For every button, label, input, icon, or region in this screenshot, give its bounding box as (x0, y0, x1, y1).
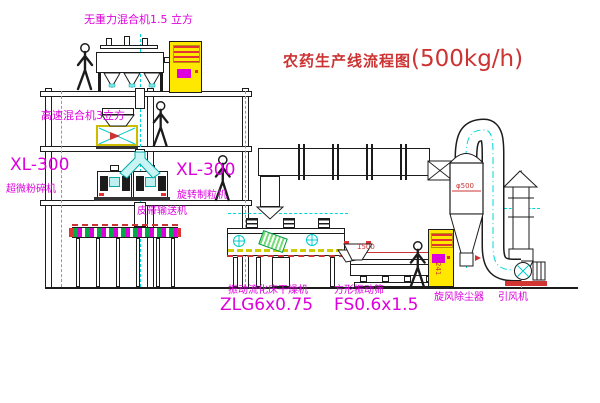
duct-vertical (260, 176, 280, 207)
sieve-dim-tick (352, 249, 353, 256)
dryer-leg (233, 257, 238, 287)
dryer-leg (330, 257, 335, 287)
conveyor-leg (136, 238, 140, 287)
duct-flange (405, 144, 407, 180)
floor-beam-top (40, 91, 252, 97)
fan-base (505, 281, 547, 286)
diagram-title-rate: (500kg/h) (411, 46, 523, 72)
mixer-stub (124, 36, 130, 46)
mixer-stub (142, 38, 148, 46)
centerline (504, 208, 540, 209)
granulator-motor (158, 176, 166, 191)
granulator-motor (100, 176, 108, 191)
centerline (466, 142, 467, 268)
conveyor-leg (76, 238, 80, 287)
sieve-inlet-mark (344, 241, 349, 245)
floor-beam-middle (40, 146, 252, 152)
label-belt-conveyor: 皮带输送机 (137, 207, 187, 217)
duct-flange (303, 144, 305, 180)
cyclone-exhaust-duct (466, 130, 521, 270)
person-figure (78, 44, 92, 89)
dryer-support-block (272, 257, 290, 287)
label-high-speed-mixer: 高速混合机3立方 (41, 110, 125, 121)
label-cyclone: 旋风除尘器 (434, 293, 484, 303)
cabinet-lamp (195, 70, 198, 73)
mixer-hoppers (104, 73, 160, 87)
duct-flange (400, 144, 402, 180)
hs-mixer-bowl (96, 125, 138, 146)
duct-flange (332, 144, 334, 180)
zero-gravity-mixer-body (96, 52, 164, 73)
dryer-inner-line (228, 233, 344, 234)
conveyor-leg (156, 238, 160, 287)
conveyor-end-mark (69, 228, 73, 237)
centerline (245, 91, 246, 287)
label-dryer-model: ZLG6x0.75 (220, 297, 313, 314)
label-granulator-model: XL-300 (176, 162, 235, 179)
dryer-frame-stripe (228, 249, 344, 252)
chute-mixer-down (135, 88, 145, 109)
duct-flange (298, 144, 300, 180)
dim-cyclone-diameter: φ500 (456, 183, 474, 190)
ground-line (45, 287, 578, 289)
cabinet-indicator-grid (173, 45, 200, 63)
conveyor-leg (96, 238, 100, 287)
granulator-mark (161, 193, 166, 196)
belt-conveyor-body (72, 227, 178, 238)
cabinet-lamp (447, 256, 450, 259)
label-sieve-model: FS0.6x1.5 (334, 297, 418, 314)
granulator-motor (122, 176, 130, 191)
cabinet-display (177, 69, 191, 78)
mixer-leg (98, 73, 101, 91)
centerline (228, 213, 348, 214)
label-pulverizer-model: XL-300 (10, 157, 69, 174)
granulator-inlet (110, 165, 119, 171)
label-zero-gravity-mixer: 无重力混合机1.5 立方 (84, 14, 193, 25)
granulator-window (109, 177, 120, 187)
label-granulator-name: 旋转制粒机 (177, 191, 227, 201)
dim-sieve-length: 1500 (357, 244, 375, 251)
chute-hsmixer-down (135, 149, 145, 153)
diagram-title-cn: 农药生产线流程图 (283, 50, 411, 71)
person-figure (154, 102, 168, 146)
conveyor-leg (171, 238, 175, 287)
granulator-base (94, 197, 170, 201)
cad-flow-diagram: 农药生产线流程图 (500kg/h) 无重力混合机1.5 立方 高速混合机3立方… (0, 0, 600, 403)
granulator-window (145, 177, 156, 187)
mixer-stub (106, 38, 112, 46)
granulator-motor (136, 176, 144, 191)
granulator-mark (99, 193, 104, 196)
conveyor-leg (116, 238, 120, 287)
hs-mixer-base (96, 146, 138, 149)
label-pulverizer-name: 超微粉碎机 (6, 185, 56, 195)
granulator-inlet (146, 165, 155, 171)
duct-flange (337, 144, 339, 180)
centerline (521, 170, 522, 288)
belt-conveyor-red-edge (72, 224, 178, 226)
diagram-title: 农药生产线流程图 (500kg/h) (283, 46, 523, 72)
label-fan: 引风机 (498, 293, 528, 303)
duct-flange (371, 144, 373, 180)
dryer-leg (256, 257, 261, 287)
mixer-leg (160, 73, 163, 91)
rotary-valve-mark (475, 255, 481, 261)
dim-sieve-height: 241 (434, 262, 441, 275)
conveyor-end-mark (177, 228, 181, 237)
cabinet-indicator-grid (431, 233, 453, 248)
induced-draft-fan (505, 262, 547, 286)
duct-flange (366, 144, 368, 180)
